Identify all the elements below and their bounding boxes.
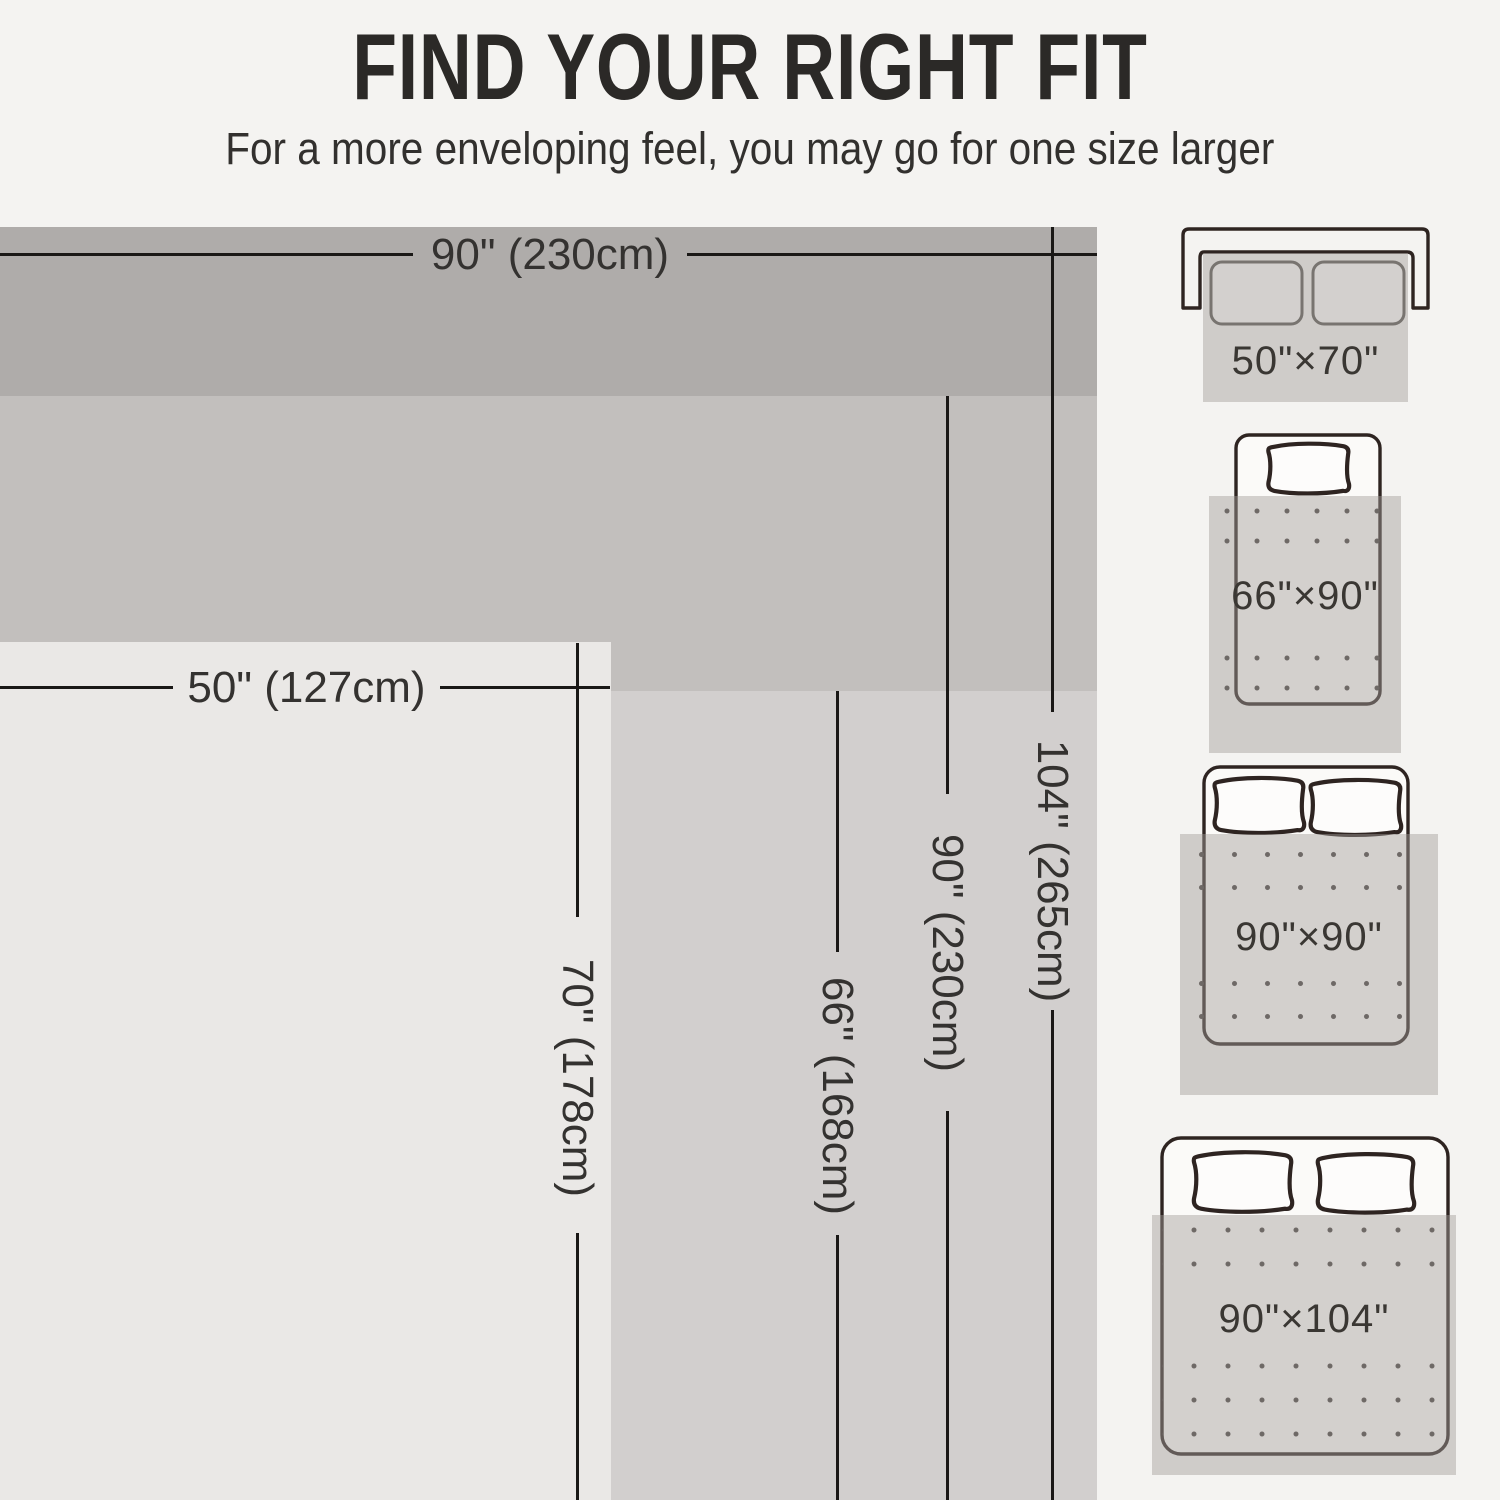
width-dim-label-90: 90" (230cm)	[413, 233, 687, 277]
blanket-overlay	[1152, 1215, 1456, 1475]
size-option-label: 90"×104"	[1152, 1297, 1456, 1341]
height-dim-label-66: 66" (168cm)	[815, 946, 859, 1246]
height-dim-line-104	[1051, 227, 1054, 712]
blanket-area-50x70	[0, 642, 611, 1500]
size-option-90x90: 90"×90"	[1150, 760, 1480, 1105]
quilt-dots	[1162, 1349, 1446, 1451]
size-option-90x104: 90"×104"	[1140, 1130, 1490, 1490]
height-dim-line-104	[1051, 1010, 1054, 1500]
quilt-dots	[1190, 967, 1428, 1031]
size-option-label: 66"×90"	[1209, 574, 1401, 618]
height-dim-line-66	[836, 1235, 839, 1500]
height-dim-line-90	[946, 396, 949, 794]
width-dim-line-50	[440, 686, 610, 689]
quilt-dots	[1190, 838, 1428, 900]
width-dim-line-90	[687, 253, 1097, 256]
blanket-overlay	[1180, 834, 1438, 1095]
blanket-overlay	[1209, 496, 1401, 753]
quilt-dots	[1219, 496, 1391, 556]
height-dim-label-70: 70" (178cm)	[555, 928, 599, 1228]
width-dim-line-90	[0, 253, 413, 256]
height-dim-line-70	[576, 1233, 579, 1500]
page-subtitle: For a more enveloping feel, you may go f…	[0, 124, 1500, 174]
quilt-dots	[1219, 643, 1391, 705]
height-dim-line-90	[946, 1111, 949, 1500]
width-dim-line-50	[0, 686, 173, 689]
height-dim-line-66	[836, 691, 839, 952]
page-title: FIND YOUR RIGHT FIT	[0, 20, 1500, 114]
height-dim-label-90: 90" (230cm)	[925, 803, 969, 1103]
size-guide-infographic: FIND YOUR RIGHT FIT For a more envelopin…	[0, 0, 1500, 1500]
size-option-label: 50"×70"	[1203, 339, 1408, 383]
width-dim-label-50: 50" (127cm)	[173, 666, 440, 710]
height-dim-label-104: 104" (265cm)	[1030, 721, 1074, 1021]
size-option-66x90: 66"×90"	[1150, 425, 1460, 765]
height-dim-line-70	[576, 643, 579, 917]
size-option-50x70: 50"×70"	[1150, 220, 1460, 420]
quilt-dots	[1162, 1215, 1446, 1281]
size-option-label: 90"×90"	[1180, 915, 1438, 959]
